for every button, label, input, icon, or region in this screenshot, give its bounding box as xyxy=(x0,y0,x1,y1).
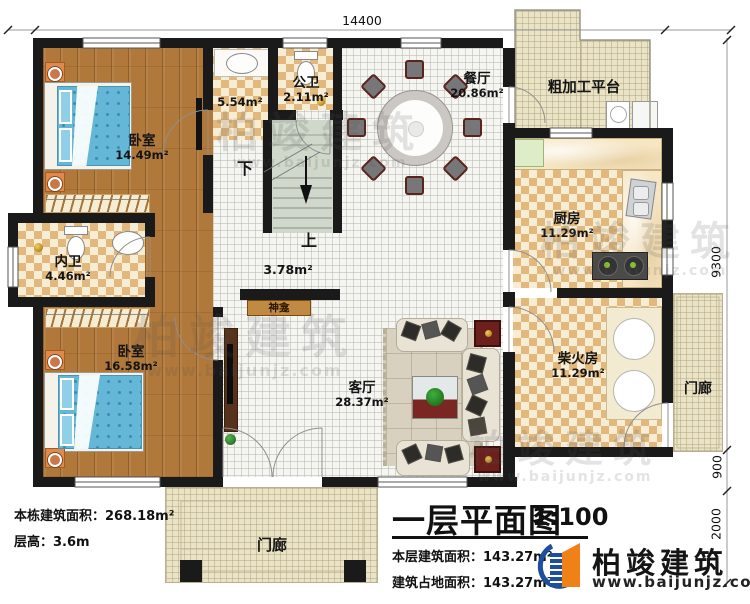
wood-stove xyxy=(613,318,655,360)
nightstand xyxy=(45,172,65,192)
info-floor-height: 层高：3.6m xyxy=(14,531,90,550)
room-area: 11.29m² xyxy=(540,227,593,240)
logo-tower-blue xyxy=(550,553,562,587)
table-center xyxy=(408,121,424,137)
stair-up-text: 上 xyxy=(301,231,317,250)
toilet-tank xyxy=(64,226,88,235)
toilet-tank xyxy=(294,51,318,60)
dining-chair xyxy=(405,176,424,195)
label-front-porch: 门廊 xyxy=(257,537,287,554)
dim-right-900: 900 xyxy=(710,455,725,479)
washer-drum xyxy=(610,106,627,123)
sink-bowl xyxy=(633,202,649,216)
nightstand xyxy=(45,448,65,468)
porch-text: 门廊 xyxy=(257,536,287,554)
room-name: 粗加工平台 xyxy=(548,80,621,96)
stairs xyxy=(272,120,333,233)
room-name: 柴火房 xyxy=(551,352,604,367)
sink-bowl xyxy=(633,186,649,200)
porch-text: 门廊 xyxy=(684,381,712,397)
room-area: 28.37m² xyxy=(335,396,388,409)
pillow xyxy=(60,414,74,446)
plant-pot xyxy=(225,434,236,445)
label-kitchen: 厨房 11.29m² xyxy=(540,212,593,240)
dim-top: 14400 xyxy=(342,13,382,28)
sofa-cushion xyxy=(468,417,488,437)
dining-chair xyxy=(463,118,482,137)
label-stair-down: 下 xyxy=(237,160,253,178)
side-table-ornament xyxy=(485,330,492,337)
label-dining: 餐厅 20.86m² xyxy=(450,72,503,100)
sink-basin xyxy=(226,53,258,74)
tv-bedroom1 xyxy=(196,98,202,150)
room-area: 5.54m² xyxy=(217,96,262,109)
cutting-board xyxy=(514,139,544,167)
room-name: 餐厅 xyxy=(450,72,503,87)
floor-area-line: 本层建筑面积：143.27m² xyxy=(392,546,552,565)
drain-fitting xyxy=(34,243,43,252)
stair-down-text: 下 xyxy=(237,159,253,178)
label-firewood: 柴火房 11.29m² xyxy=(551,352,604,380)
wardrobe xyxy=(45,308,150,328)
label-wash-area: 5.54m² xyxy=(217,96,262,109)
label-bedroom2: 卧室 16.58m² xyxy=(104,345,157,373)
label-bedroom1: 卧室 14.49m² xyxy=(115,134,168,162)
room-area: 16.58m² xyxy=(104,360,157,373)
room-name: 卧室 xyxy=(104,345,157,360)
floor-plan-page: 神龛 xyxy=(0,0,750,604)
room-name: 公卫 xyxy=(283,76,328,91)
label-platform: 粗加工平台 xyxy=(548,80,621,96)
floor-right-porch xyxy=(673,293,723,452)
scale-label: 1:100 xyxy=(532,503,608,531)
label-right-porch: 门廊 xyxy=(684,382,712,398)
tv-living xyxy=(227,344,233,404)
dining-chair xyxy=(405,60,424,79)
label-hall-area: 3.78m² xyxy=(263,263,312,277)
room-area: 14.49m² xyxy=(115,149,168,162)
room-name: 内卫 xyxy=(45,255,90,270)
room-area: 11.29m² xyxy=(551,367,604,380)
brand-logo-icon xyxy=(538,537,586,593)
shrine-label: 神龛 xyxy=(269,302,290,314)
table-plant xyxy=(426,388,444,406)
dim-right-9300: 9300 xyxy=(709,246,724,278)
room-area: 3.78m² xyxy=(263,263,312,277)
burner-flame xyxy=(630,262,636,268)
label-public-bath: 公卫 2.11m² xyxy=(283,76,328,104)
label-living: 客厅 28.37m² xyxy=(335,381,388,409)
pillow xyxy=(59,90,72,124)
side-table-ornament xyxy=(485,456,492,463)
utility-sink xyxy=(632,101,658,130)
footprint-area-line: 建筑占地面积：143.27m² xyxy=(392,572,552,591)
brand-url: www.baijunjz.com xyxy=(592,573,750,591)
floor-platform-left xyxy=(515,10,580,130)
room-area: 4.46m² xyxy=(45,270,90,283)
sofa-cushion xyxy=(425,444,444,463)
wood-stove xyxy=(613,370,655,412)
nightstand xyxy=(45,350,65,370)
dining-chair xyxy=(347,118,366,137)
room-name: 厨房 xyxy=(540,212,593,227)
burner-flame xyxy=(604,262,610,268)
room-area: 20.86m² xyxy=(450,87,503,100)
room-name: 卧室 xyxy=(115,134,168,149)
dim-right-2000: 2000 xyxy=(709,508,724,540)
room-name: 客厅 xyxy=(335,381,388,396)
floor-front-porch xyxy=(165,487,378,583)
label-inner-bath: 内卫 4.46m² xyxy=(45,255,90,283)
wardrobe xyxy=(45,194,150,213)
nightstand xyxy=(45,62,65,82)
room-area: 2.11m² xyxy=(283,91,328,104)
sink-basin xyxy=(112,231,144,255)
label-stair-up: 上 xyxy=(301,232,317,250)
info-building-area: 本栋建筑面积：268.18m² xyxy=(14,505,174,524)
shrine-banner: 神龛 xyxy=(247,300,311,316)
pillow xyxy=(59,128,72,162)
pillow xyxy=(60,378,74,410)
